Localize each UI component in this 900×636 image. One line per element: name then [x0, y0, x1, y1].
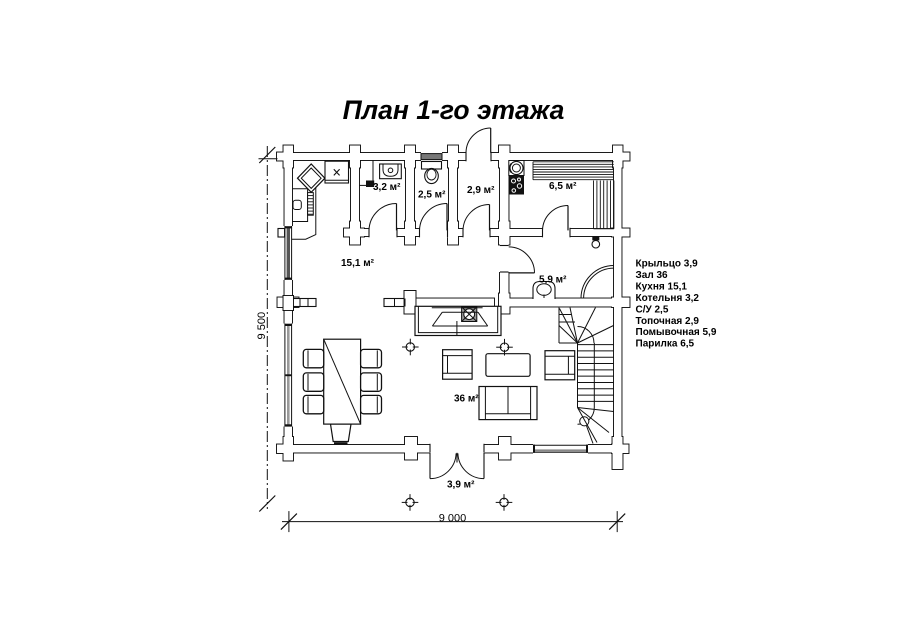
svg-text:Топочная 2,9: Топочная 2,9	[636, 316, 700, 327]
svg-text:Помывочная 5,9: Помывочная 5,9	[636, 327, 717, 338]
svg-text:С/У 2,5: С/У 2,5	[636, 304, 669, 315]
svg-text:2,5 м²: 2,5 м²	[418, 190, 446, 201]
svg-text:Парилка 6,5: Парилка 6,5	[636, 339, 695, 350]
svg-text:15,1 м²: 15,1 м²	[341, 258, 375, 269]
svg-text:Котельня 3,2: Котельня 3,2	[636, 293, 700, 304]
svg-text:Зал 36: Зал 36	[636, 270, 669, 281]
svg-text:Крыльцо 3,9: Крыльцо 3,9	[636, 259, 699, 270]
svg-text:2,9 м²: 2,9 м²	[467, 185, 495, 196]
svg-text:План 1-го этажа: План 1-го этажа	[343, 95, 565, 125]
svg-text:9 000: 9 000	[439, 513, 467, 525]
svg-text:36 м²: 36 м²	[454, 394, 479, 405]
svg-text:Кухня 15,1: Кухня 15,1	[636, 281, 688, 292]
svg-text:3,2 м²: 3,2 м²	[373, 182, 401, 193]
svg-text:3,9 м²: 3,9 м²	[447, 480, 475, 491]
svg-text:5,9 м²: 5,9 м²	[539, 275, 567, 286]
svg-text:9 500: 9 500	[256, 312, 268, 340]
svg-text:6,5 м²: 6,5 м²	[549, 181, 577, 192]
